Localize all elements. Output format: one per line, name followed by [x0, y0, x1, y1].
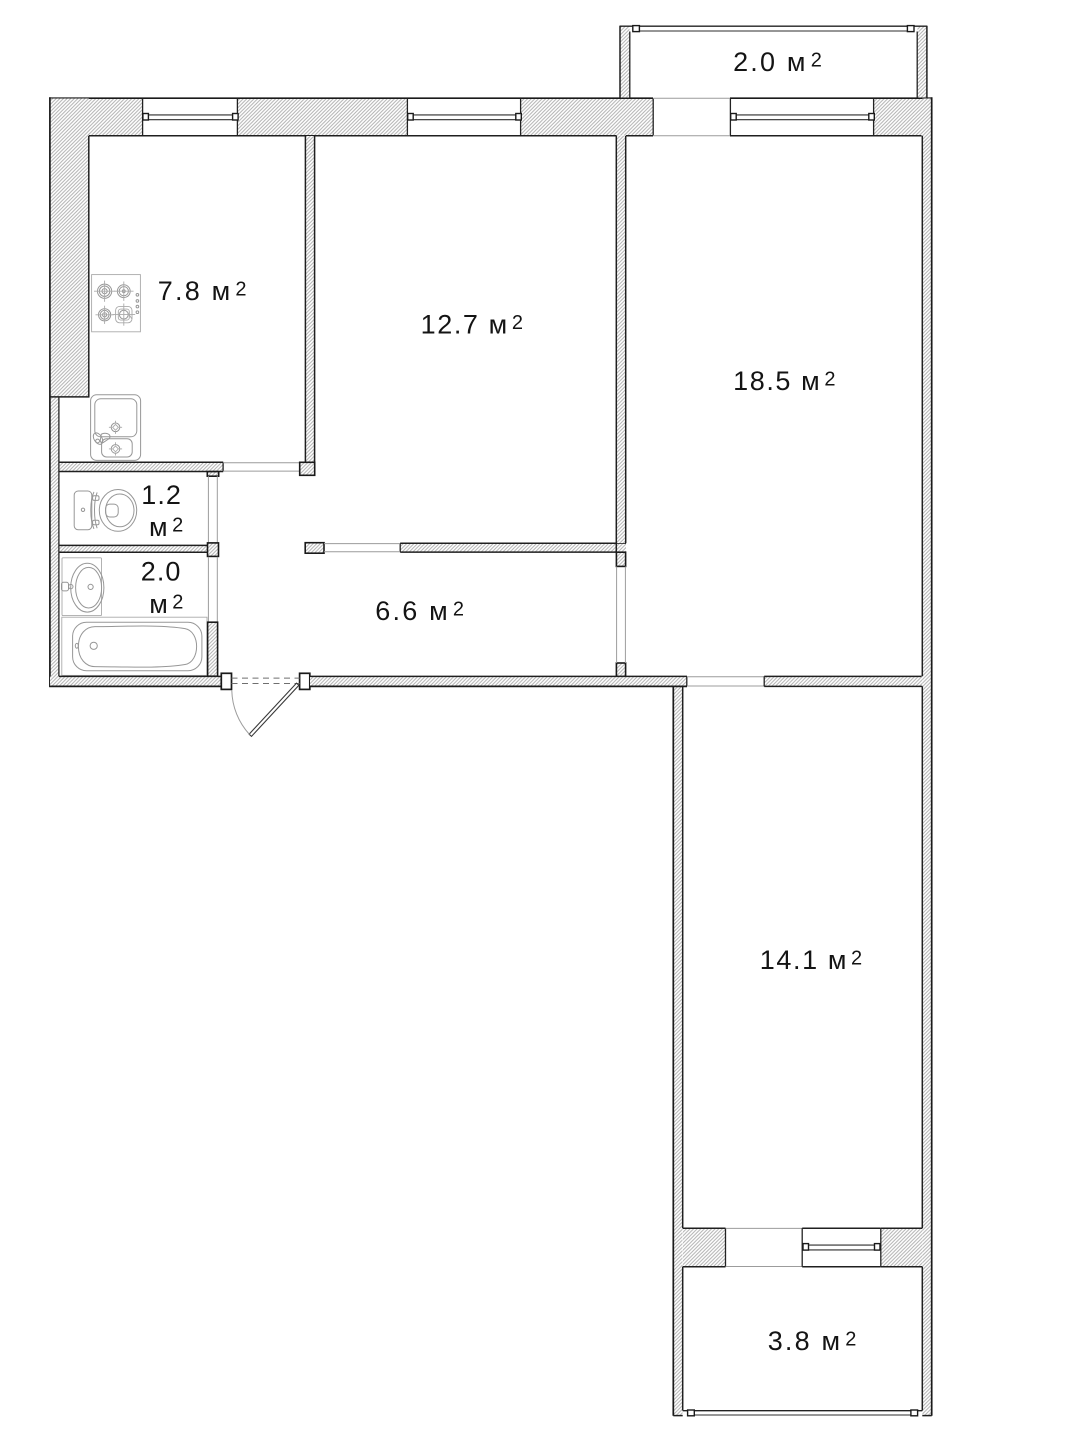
svg-text:2.0: 2.0 — [141, 557, 182, 587]
svg-text:12.7 м2: 12.7 м2 — [421, 310, 523, 340]
svg-text:1.2: 1.2 — [141, 480, 182, 510]
svg-text:14.1 м2: 14.1 м2 — [760, 945, 862, 975]
svg-text:18.5 м2: 18.5 м2 — [733, 366, 835, 396]
